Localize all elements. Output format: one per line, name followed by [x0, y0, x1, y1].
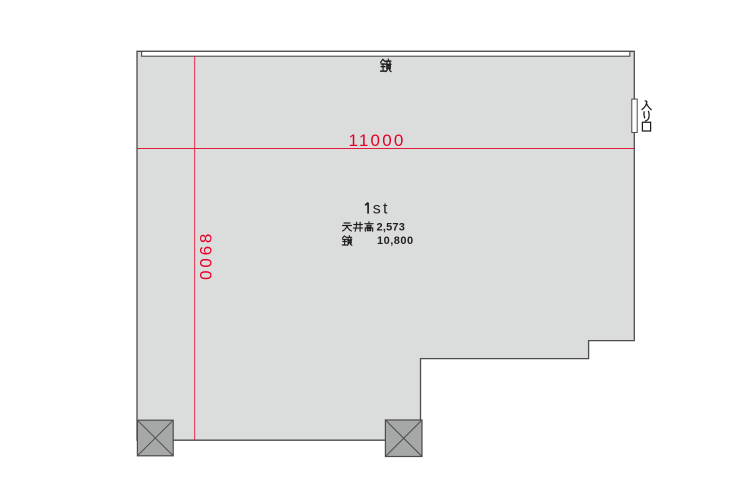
svg-text:10,800: 10,800	[377, 235, 414, 247]
svg-text:2,573: 2,573	[377, 222, 406, 234]
svg-text:st: st	[373, 201, 390, 218]
svg-text:11000: 11000	[349, 131, 406, 150]
svg-text:0068: 0068	[197, 231, 216, 280]
